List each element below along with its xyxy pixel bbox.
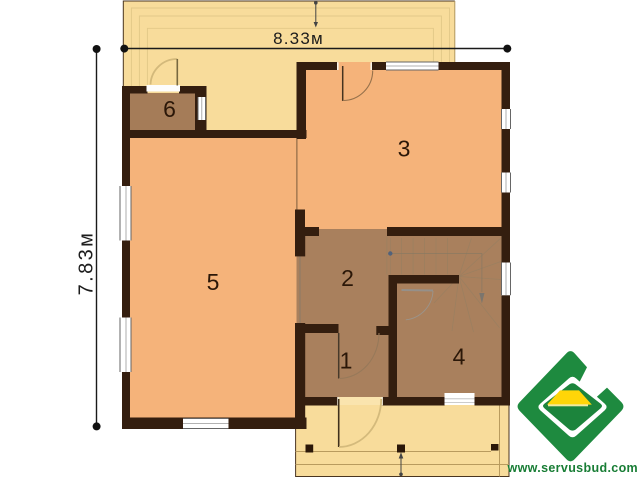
svg-text:7.83м: 7.83м bbox=[76, 231, 98, 296]
svg-text:3: 3 bbox=[398, 136, 411, 162]
svg-text:2: 2 bbox=[341, 265, 354, 291]
svg-text:4: 4 bbox=[453, 344, 466, 370]
svg-text:8.33м: 8.33м bbox=[273, 29, 324, 48]
svg-text:www.servusbud.com: www.servusbud.com bbox=[507, 461, 639, 475]
svg-text:6: 6 bbox=[163, 96, 176, 122]
svg-text:5: 5 bbox=[207, 269, 220, 295]
svg-text:1: 1 bbox=[340, 348, 353, 374]
